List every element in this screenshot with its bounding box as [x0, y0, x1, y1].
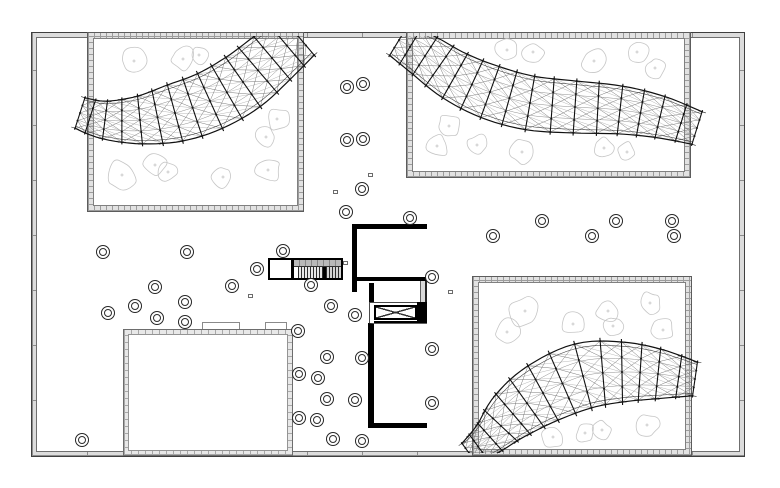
small-marker — [248, 294, 253, 298]
tree-ring — [356, 132, 370, 146]
tree-ring — [425, 270, 439, 284]
tree-ring — [320, 392, 334, 406]
stair-run-icon — [326, 267, 341, 278]
northeast-canopy — [386, 23, 706, 146]
small-marker — [448, 290, 453, 294]
tree-ring — [356, 77, 370, 91]
stair-room — [270, 260, 294, 278]
tree-ring — [355, 434, 369, 448]
tree-ring — [96, 245, 110, 259]
tower-corridor-wall — [369, 283, 374, 303]
northwest-canopy — [71, 14, 317, 146]
small-marker — [333, 190, 338, 194]
tree-ring — [310, 413, 324, 427]
tree-ring — [320, 350, 334, 364]
tree-ring — [425, 342, 439, 356]
tree-ring — [348, 308, 362, 322]
tree-ring — [324, 299, 338, 313]
tree-ring — [291, 324, 305, 338]
tree-ring — [180, 245, 194, 259]
tree-ring — [178, 315, 192, 329]
tower-wall-stub — [352, 279, 357, 292]
tree-ring — [667, 229, 681, 243]
tree-ring — [425, 396, 439, 410]
tree-ring — [326, 432, 340, 446]
tower-bottom-room — [368, 323, 427, 428]
small-marker — [368, 173, 373, 177]
tree-ring — [101, 306, 115, 320]
stair-landing — [294, 260, 341, 267]
tree-ring — [292, 411, 306, 425]
tree-ring — [585, 229, 599, 243]
tree-ring — [340, 133, 354, 147]
tree-ring — [250, 262, 264, 276]
tree-ring — [665, 214, 679, 228]
tree-ring — [128, 299, 142, 313]
stair-run-icon — [298, 267, 323, 278]
stair-block — [268, 258, 343, 280]
tree-ring — [75, 433, 89, 447]
tree-ring — [148, 280, 162, 294]
tower-top-room — [352, 224, 427, 281]
tree-ring — [486, 229, 500, 243]
tree-ring — [535, 214, 549, 228]
tree-ring — [150, 311, 164, 325]
tree-ring — [609, 214, 623, 228]
tree-ring — [276, 244, 290, 258]
tree-ring — [355, 351, 369, 365]
tree-ring — [348, 393, 362, 407]
site-plan — [0, 0, 780, 488]
tree-ring — [304, 278, 318, 292]
small-marker — [343, 261, 348, 265]
tree-ring — [340, 80, 354, 94]
tree-ring — [225, 279, 239, 293]
tree-ring — [178, 295, 192, 309]
tree-ring — [292, 367, 306, 381]
tree-ring — [311, 371, 325, 385]
tree-ring — [339, 205, 353, 219]
tree-ring — [403, 211, 417, 225]
tree-ring — [355, 182, 369, 196]
southeast-canopy — [459, 338, 702, 465]
elevator-icon — [374, 305, 417, 320]
